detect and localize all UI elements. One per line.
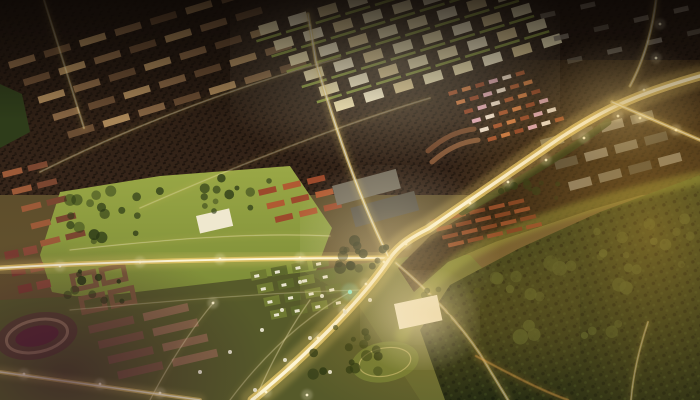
gold-center-haze [300, 210, 580, 400]
rendered-scene [0, 0, 700, 400]
bottomleft-shadow [0, 230, 260, 400]
top-vignette [0, 0, 700, 120]
scene-layers [0, 0, 700, 400]
city-aerial-rendering [0, 0, 700, 400]
